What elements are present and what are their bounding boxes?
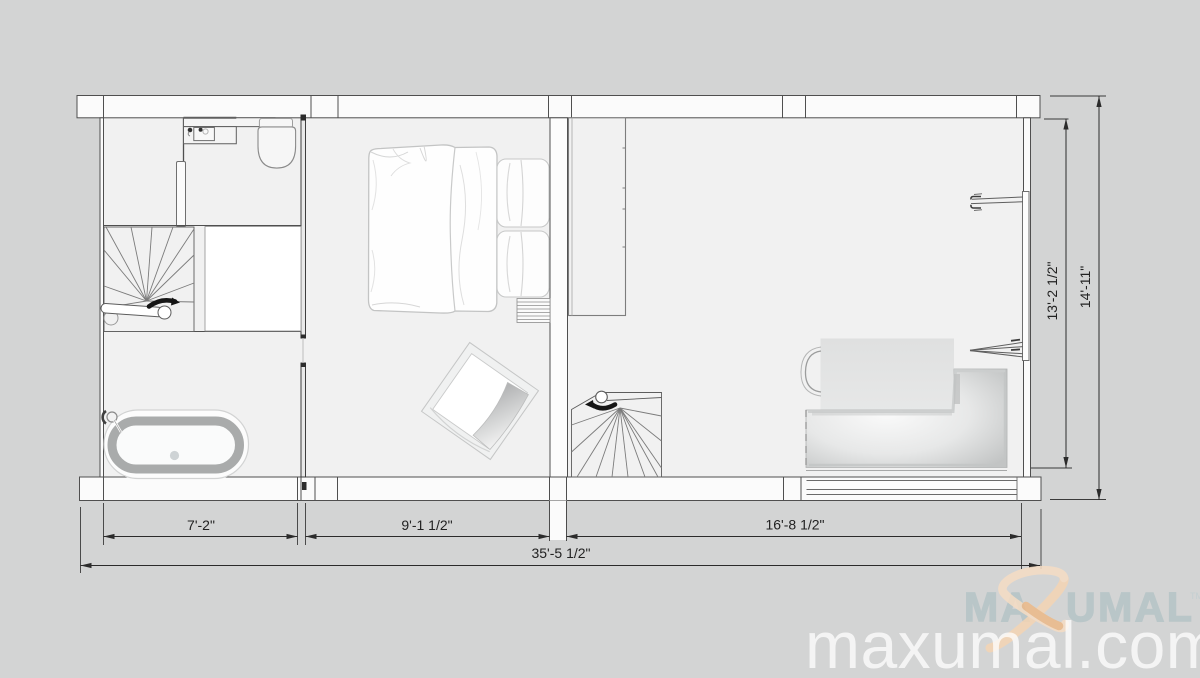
- svg-text:35'-5 1/2": 35'-5 1/2": [531, 545, 590, 561]
- svg-text:maxumal.com: maxumal.com: [805, 608, 1200, 678]
- svg-text:9'-1 1/2": 9'-1 1/2": [401, 517, 452, 533]
- svg-text:13'-2 1/2": 13'-2 1/2": [1044, 261, 1060, 320]
- svg-text:16'-8 1/2": 16'-8 1/2": [765, 517, 824, 533]
- svg-text:TM: TM: [1190, 591, 1200, 601]
- svg-text:14'-11": 14'-11": [1077, 266, 1093, 308]
- svg-text:7'-2": 7'-2": [187, 517, 215, 533]
